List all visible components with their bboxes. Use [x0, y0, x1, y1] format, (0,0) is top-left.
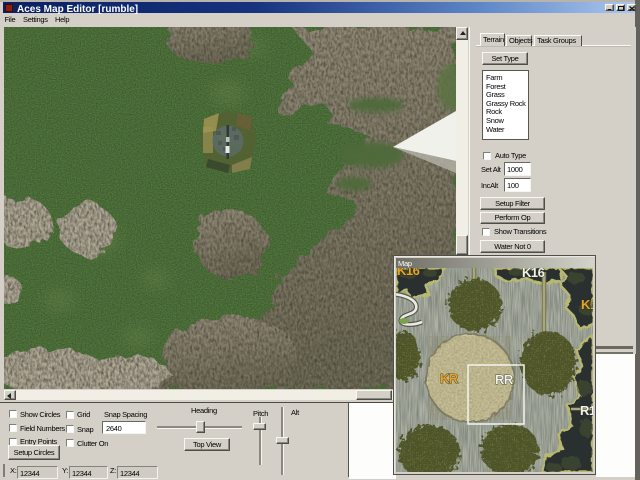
svg-text:K16: K16 — [397, 268, 420, 278]
svg-text:K1: K1 — [581, 297, 593, 312]
svg-text:KR: KR — [440, 371, 459, 386]
svg-text:RR: RR — [495, 372, 514, 387]
svg-text:R1: R1 — [580, 403, 593, 418]
svg-text:K16: K16 — [522, 268, 545, 280]
